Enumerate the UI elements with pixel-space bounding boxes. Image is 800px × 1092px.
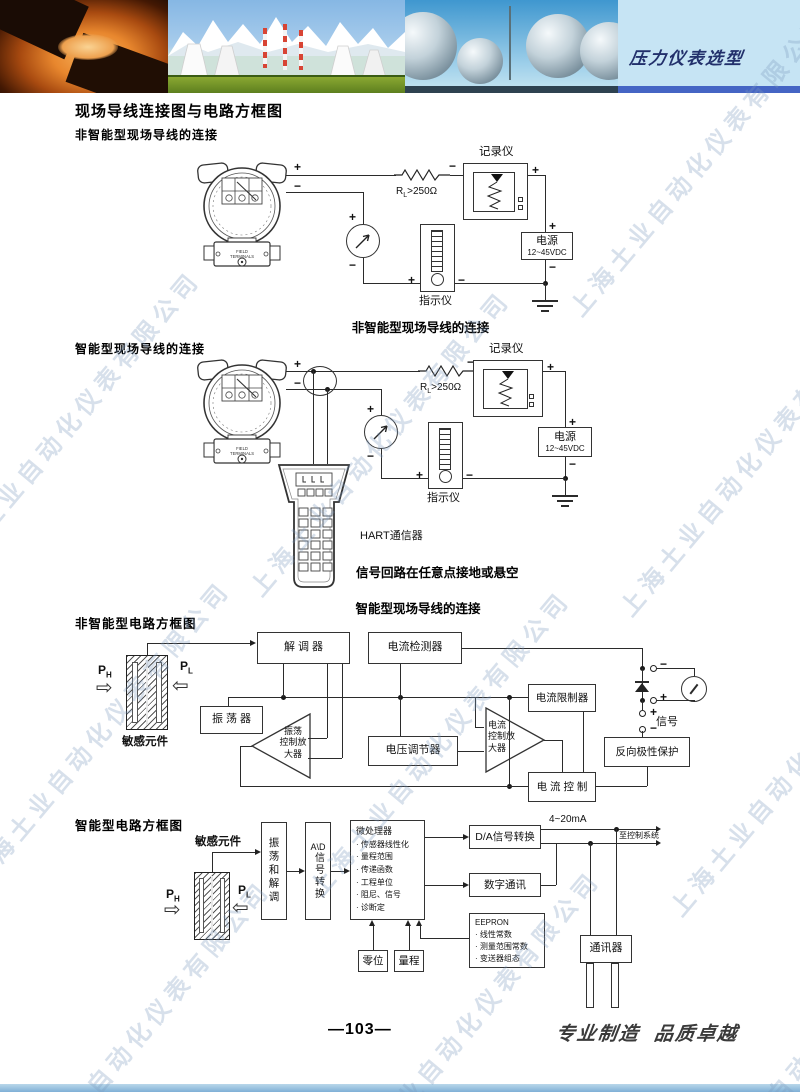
polarity-minus: − bbox=[294, 377, 301, 389]
mcu-item: · 传感器线性化 bbox=[356, 840, 409, 850]
radio-mast-graphic bbox=[509, 6, 511, 80]
resistor-symbol bbox=[418, 364, 474, 378]
sensor-slot bbox=[132, 662, 138, 723]
sensor-label: 敏感元件 bbox=[195, 836, 241, 849]
wire bbox=[147, 643, 148, 655]
mcu-title: 微处理器 bbox=[356, 826, 392, 837]
recorder-trace bbox=[484, 370, 527, 408]
wire bbox=[400, 664, 401, 736]
indicator-dial bbox=[439, 470, 452, 483]
ground-symbol bbox=[541, 310, 549, 312]
wire bbox=[409, 924, 410, 950]
wire bbox=[308, 758, 342, 759]
polarity-minus: − bbox=[349, 259, 356, 271]
indicator-scale bbox=[431, 230, 443, 272]
ground-symbol bbox=[552, 495, 578, 497]
mcu-item: · 传递函数 bbox=[356, 865, 393, 875]
mcu-item: · 工程单位 bbox=[356, 878, 393, 888]
recorder-button bbox=[529, 394, 534, 399]
polarity-plus: + bbox=[660, 691, 667, 703]
current-control-amp-label: 电流 控制放 大器 bbox=[488, 720, 522, 754]
sphere-tank-graphic bbox=[405, 12, 457, 80]
transmitter-drawing: FIELD TERMINALS bbox=[192, 160, 292, 272]
wire bbox=[363, 192, 364, 224]
eeprom-title: EEPRON bbox=[475, 918, 509, 928]
ground-symbol bbox=[557, 500, 573, 502]
communicator-leg bbox=[586, 963, 594, 1008]
watermark: 上海土业自动化仪表有限公司 bbox=[680, 881, 800, 1092]
ad-converter-box: A\D 信号转换 bbox=[305, 822, 331, 920]
wire bbox=[327, 389, 328, 464]
osc-control-amp-label: 振荡 控制放 大器 bbox=[276, 726, 310, 760]
recorder-button bbox=[518, 205, 523, 210]
da-converter-box: D/A信号转换 bbox=[469, 825, 541, 849]
p-symbol: P bbox=[98, 663, 106, 677]
arrowhead-up bbox=[405, 920, 411, 926]
voltage-regulator-box: 电压调节器 bbox=[368, 736, 458, 766]
section1-caption: 非智能型现场导线的连接 bbox=[338, 322, 503, 335]
current-detector-box: 电流检测器 bbox=[368, 632, 462, 664]
wire bbox=[541, 843, 658, 844]
sphere-tank-graphic bbox=[457, 38, 503, 84]
wire bbox=[596, 786, 647, 787]
diode-triangle bbox=[635, 683, 649, 692]
low-pressure-label: PL bbox=[180, 660, 193, 675]
communicator-box: 通讯器 bbox=[580, 935, 632, 963]
terminal-circle bbox=[639, 710, 646, 717]
bottom-accent-bar bbox=[0, 1084, 800, 1092]
wire bbox=[327, 664, 328, 738]
signal-loop-note: 信号回路在任意点接地或悬空 bbox=[356, 567, 519, 580]
wire bbox=[363, 258, 364, 283]
wire bbox=[544, 740, 562, 741]
sensor-axis bbox=[146, 660, 148, 725]
digital-comm-box: 数字通讯 bbox=[469, 873, 541, 897]
indicator-label: 指示仪 bbox=[419, 295, 452, 308]
arrowhead bbox=[255, 849, 261, 855]
arrowhead bbox=[344, 868, 350, 874]
arrowhead bbox=[299, 868, 305, 874]
wire bbox=[565, 371, 566, 427]
polarity-plus: + bbox=[549, 220, 556, 232]
wire bbox=[545, 175, 546, 232]
polarity-plus: + bbox=[294, 161, 301, 173]
wire bbox=[541, 885, 556, 886]
polarity-plus: + bbox=[349, 211, 356, 223]
indicator-dial bbox=[431, 273, 444, 286]
banner-accent-bar bbox=[618, 86, 800, 93]
ground-symbol bbox=[537, 305, 553, 307]
load-resistance-label: RL>250Ω bbox=[396, 187, 437, 199]
gas-spheres-photo bbox=[405, 0, 618, 93]
wire bbox=[562, 740, 563, 772]
transmitter-drawing: FIELD TERMINALS bbox=[192, 357, 292, 469]
power-supply-range: 12~45VDC bbox=[527, 248, 566, 258]
wire bbox=[528, 175, 545, 176]
eeprom-box: EEPRON · 线性常数 · 测量范围常数 · 变送器组态 bbox=[469, 913, 545, 968]
osc-demod-label: 振荡和解调 bbox=[267, 837, 282, 905]
wire bbox=[313, 371, 314, 464]
recorder-button bbox=[518, 197, 523, 202]
footer-slogan: 专业制造 品质卓越 bbox=[554, 1019, 740, 1046]
wire bbox=[458, 751, 484, 752]
section2-heading: 智能型现场导线的连接 bbox=[75, 343, 205, 355]
power-supply-label: 电源 bbox=[536, 235, 558, 248]
arrowhead bbox=[656, 840, 661, 846]
polarity-minus: − bbox=[549, 261, 556, 273]
polarity-minus: − bbox=[650, 722, 657, 734]
chimney-graphic bbox=[299, 30, 303, 70]
wire bbox=[240, 746, 252, 747]
block2-heading: 智能型电路方框图 bbox=[75, 820, 183, 833]
wire bbox=[545, 260, 546, 283]
section1-heading: 非智能型现场导线的连接 bbox=[75, 129, 218, 141]
wire bbox=[425, 837, 465, 838]
sensor-slot bbox=[199, 878, 204, 933]
wire bbox=[541, 829, 658, 830]
arrowhead bbox=[463, 834, 469, 840]
ammeter-needle bbox=[350, 228, 376, 254]
ad-label-top: A\D bbox=[310, 842, 325, 852]
wire bbox=[228, 697, 528, 698]
wire bbox=[509, 697, 510, 786]
wire bbox=[647, 767, 648, 786]
polarity-minus: − bbox=[466, 469, 473, 481]
wire bbox=[240, 786, 528, 787]
chimney-graphic bbox=[263, 28, 267, 68]
wire bbox=[240, 746, 241, 786]
mcu-item: · 诊断定 bbox=[356, 903, 385, 913]
mcu-item: · 量程范围 bbox=[356, 852, 393, 862]
sensor-slot bbox=[220, 878, 225, 933]
wire bbox=[228, 697, 229, 706]
ad-label-rest: 信号转换 bbox=[311, 852, 326, 900]
polarity-minus: − bbox=[294, 180, 301, 192]
signal-label: 信号 bbox=[656, 716, 678, 729]
r-value: >250Ω bbox=[431, 382, 461, 393]
wire bbox=[331, 871, 345, 872]
wire bbox=[381, 389, 382, 415]
ground-graphic bbox=[405, 86, 618, 93]
polarity-plus: + bbox=[367, 403, 374, 415]
wire bbox=[642, 648, 643, 668]
wire bbox=[543, 371, 565, 372]
polarity-plus: + bbox=[416, 469, 423, 481]
microprocessor-box: 微处理器 · 传感器线性化 · 量程范围 · 传递函数 · 工程单位 · 阻尼、… bbox=[350, 820, 425, 920]
recorder-trace bbox=[474, 173, 514, 211]
zero-box: 零位 bbox=[358, 950, 388, 972]
polarity-minus: − bbox=[449, 160, 456, 172]
indicator-label: 指示仪 bbox=[427, 492, 460, 505]
arrowhead bbox=[250, 640, 256, 646]
wire bbox=[147, 643, 251, 644]
sensor-slot bbox=[156, 662, 162, 723]
wire bbox=[373, 924, 374, 950]
r-value: >250Ω bbox=[407, 186, 437, 197]
resistor-symbol bbox=[394, 168, 450, 182]
wire bbox=[212, 852, 213, 872]
polarity-plus: + bbox=[408, 274, 415, 286]
wire bbox=[455, 283, 545, 284]
wire bbox=[565, 457, 566, 478]
wire bbox=[657, 700, 694, 701]
arrowhead bbox=[463, 882, 469, 888]
catalog-page: 压力仪表选型 现场导线连接图与电路方框图 非智能型现场导线的连接 FIELD T… bbox=[0, 0, 800, 1092]
power-supply-box: 电源 12~45VDC bbox=[538, 427, 592, 457]
wire bbox=[420, 938, 469, 939]
eeprom-item: · 测量范围常数 bbox=[475, 942, 528, 952]
terminal-circle bbox=[650, 697, 657, 704]
recorder-label: 记录仪 bbox=[489, 343, 524, 356]
ma-range-label: 4~20mA bbox=[549, 814, 587, 826]
wire bbox=[556, 843, 557, 885]
to-control-label: 至控制系统 bbox=[619, 831, 659, 840]
wire bbox=[694, 700, 695, 702]
polarity-minus: − bbox=[367, 450, 374, 462]
ground-symbol bbox=[532, 300, 558, 302]
handshake-glow bbox=[58, 34, 118, 60]
polarity-minus: − bbox=[569, 458, 576, 470]
ground-symbol bbox=[565, 478, 566, 495]
current-control-box: 电 流 控 制 bbox=[528, 772, 596, 802]
banner-title: 压力仪表选型 bbox=[628, 44, 746, 69]
chimney-graphic bbox=[283, 24, 287, 70]
wire bbox=[420, 924, 421, 938]
wire bbox=[694, 668, 695, 676]
sensor-axis bbox=[211, 876, 213, 936]
power-supply-range: 12~45VDC bbox=[545, 444, 584, 454]
power-plant-photo bbox=[168, 0, 405, 93]
load-resistance-label: RL>250Ω bbox=[420, 383, 461, 395]
ground-symbol bbox=[561, 505, 569, 507]
polarity-minus: − bbox=[458, 274, 465, 286]
arrowhead-up bbox=[416, 920, 422, 926]
power-supply-label: 电源 bbox=[554, 431, 576, 444]
recorder-label: 记录仪 bbox=[479, 146, 514, 159]
osc-demod-box: 振荡和解调 bbox=[261, 822, 287, 920]
watermark: 上海土业自动化仪表有限公司 bbox=[0, 261, 207, 582]
page-number: —103— bbox=[328, 1022, 392, 1038]
wire bbox=[583, 712, 584, 772]
hart-communicator-drawing bbox=[272, 462, 356, 592]
ammeter-needle bbox=[368, 419, 394, 445]
wire bbox=[286, 192, 363, 193]
terminal-circle bbox=[650, 665, 657, 672]
mcu-item: · 阻尼、信号 bbox=[356, 890, 401, 900]
wire bbox=[463, 478, 565, 479]
loop-junction-ellipse bbox=[303, 366, 337, 396]
block1-heading: 非智能型电路方框图 bbox=[75, 618, 197, 631]
power-supply-box: 电源 12~45VDC bbox=[521, 232, 573, 260]
wire bbox=[283, 664, 284, 697]
wire bbox=[212, 852, 257, 853]
wire bbox=[462, 648, 642, 649]
communicator-leg bbox=[611, 963, 619, 1008]
pressure-arrow-left-icon: ⇦ bbox=[232, 898, 249, 918]
p-symbol: P bbox=[180, 659, 188, 673]
recorder-button bbox=[529, 402, 534, 407]
field-graphic bbox=[168, 77, 405, 93]
eeprom-item: · 变送器组态 bbox=[475, 954, 520, 964]
pressure-arrow-right-icon: ⇨ bbox=[96, 678, 113, 698]
wire bbox=[475, 727, 484, 728]
wire bbox=[642, 731, 643, 737]
wire bbox=[286, 175, 396, 176]
wire bbox=[363, 283, 420, 284]
demodulator-box: 解 调 器 bbox=[257, 632, 350, 664]
ground-symbol bbox=[545, 283, 546, 300]
wire bbox=[450, 175, 463, 176]
polarity-plus: + bbox=[294, 358, 301, 370]
wire bbox=[616, 829, 617, 935]
page-title: 现场导线连接图与电路方框图 bbox=[75, 104, 283, 119]
watermark: 上海土业自动化仪表有限公司 bbox=[610, 301, 800, 622]
hart-label: HART通信器 bbox=[360, 530, 423, 543]
arrowhead-up bbox=[369, 920, 375, 926]
section2-caption: 智能型现场导线的连接 bbox=[338, 603, 498, 616]
p-symbol: P bbox=[238, 883, 246, 897]
wire bbox=[381, 478, 428, 479]
page-banner: 压力仪表选型 bbox=[618, 0, 800, 86]
wire bbox=[590, 843, 591, 935]
pressure-arrow-left-icon: ⇦ bbox=[172, 676, 189, 696]
wire bbox=[642, 700, 643, 710]
handshake-photo bbox=[0, 0, 168, 93]
indicator-scale bbox=[439, 428, 451, 470]
wire bbox=[308, 738, 327, 739]
wire bbox=[381, 449, 382, 478]
sensor-label: 敏感元件 bbox=[122, 736, 168, 749]
eeprom-item: · 线性常数 bbox=[475, 930, 512, 940]
span-box: 量程 bbox=[394, 950, 424, 972]
pressure-arrow-right-icon: ⇨ bbox=[164, 900, 181, 920]
wire bbox=[657, 668, 694, 669]
reverse-polarity-box: 反向极性保护 bbox=[604, 737, 690, 767]
wire bbox=[342, 664, 343, 758]
wire bbox=[425, 885, 465, 886]
wire bbox=[475, 697, 476, 727]
